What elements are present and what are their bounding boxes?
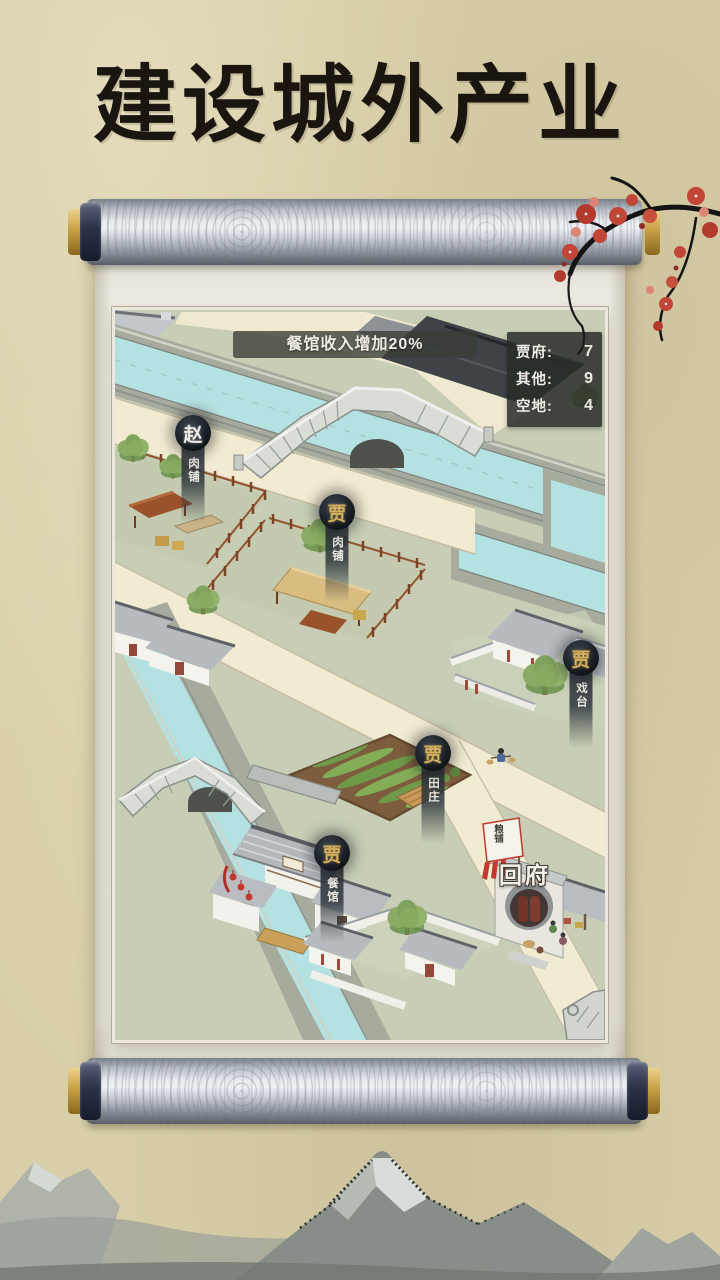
rod-end-cap-navy: [80, 203, 101, 261]
stat-row-kongdi: 空地: 4: [516, 392, 593, 419]
mountain-ink-art: [0, 1128, 720, 1280]
return-home-button[interactable]: 回府: [499, 856, 551, 890]
scroll-top-rod: [86, 199, 642, 265]
building-marker-theater[interactable]: 戏台 贾: [563, 640, 599, 676]
stats-panel: 贾府: 7 其他: 9 空地: 4: [507, 332, 602, 427]
marker-owner-badge: 贾: [563, 640, 599, 676]
stat-row-jiafu: 贾府: 7: [516, 338, 593, 365]
marker-owner-badge: 赵: [175, 415, 211, 451]
stat-label: 空地:: [516, 395, 553, 416]
stat-row-qita: 其他: 9: [516, 365, 593, 392]
page-background: 餐馆收入增加20% 贾府: 7 其他: 9 空地: 4 肉铺 赵 肉铺 贾 田庄: [0, 0, 720, 1280]
building-marker-butcher-jia[interactable]: 肉铺 贾: [319, 494, 355, 530]
scroll-bottom-rod: [86, 1058, 642, 1124]
event-banner: 餐馆收入增加20%: [233, 331, 477, 358]
marker-owner-badge: 贾: [415, 735, 451, 771]
stat-label: 其他:: [516, 368, 553, 389]
game-map-viewport[interactable]: 餐馆收入增加20% 贾府: 7 其他: 9 空地: 4 肉铺 赵 肉铺 贾 田庄: [115, 310, 605, 1040]
rod-end-cap-gold: [645, 209, 660, 255]
stat-value: 9: [584, 370, 593, 388]
shop-flag-label: 粮铺: [489, 824, 506, 860]
rod-end-cap-navy: [627, 1062, 648, 1120]
building-marker-butcher-zhao[interactable]: 肉铺 赵: [175, 415, 211, 451]
building-marker-farm[interactable]: 田庄 贾: [415, 735, 451, 771]
marker-owner-badge: 贾: [314, 835, 350, 871]
building-marker-restaurant[interactable]: 餐馆 贾: [314, 835, 350, 871]
page-title: 建设城外产业: [0, 38, 720, 159]
rod-end-cap-navy: [80, 1062, 101, 1120]
marker-owner-badge: 贾: [319, 494, 355, 530]
stat-value: 7: [584, 343, 593, 361]
stat-label: 贾府:: [516, 341, 553, 362]
stat-value: 4: [584, 397, 593, 415]
